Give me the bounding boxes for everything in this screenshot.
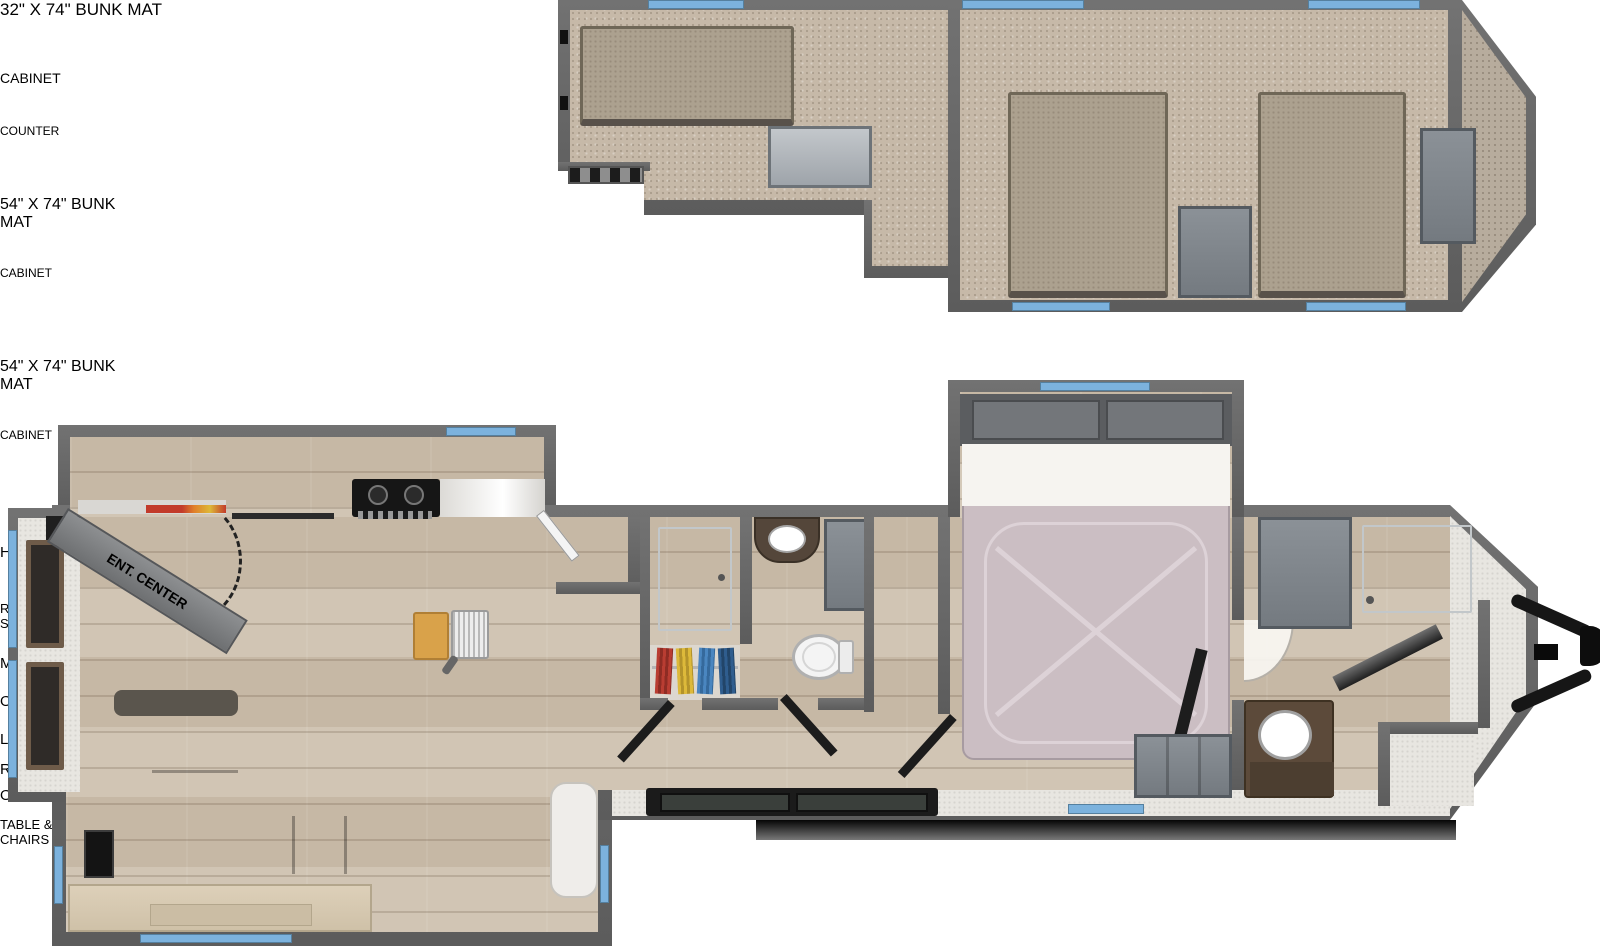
wall xyxy=(640,517,650,705)
loft-stair-tread xyxy=(874,139,946,170)
hitch-jack xyxy=(1534,644,1558,660)
loft-cabinet-mid-label: CABINET xyxy=(0,266,74,358)
window xyxy=(1012,302,1110,311)
wall xyxy=(1378,722,1478,734)
entry-door-pane xyxy=(660,793,790,812)
loft-stair-tread xyxy=(874,232,946,263)
island-chair xyxy=(312,572,368,604)
loft-stair-tread xyxy=(874,108,946,139)
microwave-cabinet xyxy=(342,437,434,479)
l-sofa-armrest xyxy=(114,690,238,716)
island-chair xyxy=(312,691,368,721)
chassis-rail xyxy=(756,820,1456,840)
bath-sink xyxy=(768,525,806,553)
burner xyxy=(368,485,388,505)
window xyxy=(1308,0,1420,9)
bunk-mat-32x74 xyxy=(580,26,794,126)
bedroom-ohc-face xyxy=(972,400,1100,440)
wall xyxy=(740,517,752,644)
loft-cabinet-mid xyxy=(1178,206,1252,298)
stair-tread xyxy=(874,571,938,606)
burner xyxy=(404,485,424,505)
med-base xyxy=(1250,762,1334,796)
tv xyxy=(84,830,114,878)
slide-topper xyxy=(988,8,1150,32)
loft-cabinet-right xyxy=(1420,128,1476,244)
entry-step xyxy=(664,818,752,852)
cushion-seam xyxy=(344,816,347,874)
window xyxy=(140,934,292,943)
rear-window xyxy=(26,662,64,770)
ward-closet-seam xyxy=(1166,737,1169,795)
refrigerator xyxy=(228,437,338,515)
window xyxy=(446,427,516,436)
l-sofa xyxy=(112,688,240,878)
pillow xyxy=(1094,450,1198,498)
bunk-mat-54x74-left xyxy=(1008,92,1168,298)
rv-floorplan: 32" X 74" BUNK MAT CABINET COUNTER 54" X… xyxy=(0,0,1600,946)
window xyxy=(1306,302,1406,311)
loft-cabinet-left xyxy=(768,126,872,188)
loft-cabinet-right-text: CABINET xyxy=(0,428,52,442)
pillow xyxy=(976,450,1080,498)
wall xyxy=(556,582,640,594)
bunk-mat-54x74-right xyxy=(1258,92,1406,298)
wall xyxy=(1232,700,1244,790)
window xyxy=(8,660,17,778)
stair-tread xyxy=(874,676,938,711)
window xyxy=(8,530,17,648)
dresser xyxy=(1040,740,1132,796)
cutting-board xyxy=(413,612,449,660)
loft-stair-tread xyxy=(874,201,946,232)
bunk-mat-54x74-right-label: 54" X 74" BUNK MAT xyxy=(0,358,148,428)
dining-chair xyxy=(402,786,456,838)
hanging-clothes xyxy=(676,648,694,695)
stair-tread xyxy=(874,606,938,641)
closet-linen xyxy=(1258,517,1352,629)
wd-prep-room xyxy=(1390,734,1474,806)
window xyxy=(648,0,744,9)
slide-topper xyxy=(1278,8,1445,32)
hidden-pantry xyxy=(78,437,226,502)
toilet-seat xyxy=(802,642,836,672)
entry-door-pane xyxy=(796,793,928,812)
hanging-clothes xyxy=(718,648,736,695)
bedroom-ohc-face xyxy=(1106,400,1224,440)
shower-drain xyxy=(1366,596,1374,604)
loft-counter-text: COUNTER xyxy=(0,124,59,138)
dining-chair xyxy=(402,844,456,896)
window xyxy=(1068,804,1144,814)
loft-stair-tread xyxy=(874,170,946,201)
ward-closet-seam xyxy=(1198,737,1201,795)
kitchen-counter-right xyxy=(440,479,545,517)
loft-counter-label: COUNTER xyxy=(0,124,46,196)
rear-window xyxy=(26,540,64,648)
wall xyxy=(864,517,874,712)
entry-step xyxy=(656,850,756,886)
shower-pan-line xyxy=(1362,525,1472,613)
bunk-mat-54x74-left-label: 54" X 74" BUNK MAT xyxy=(0,196,150,266)
bunk-mat-32x74-label: 32" X 74" BUNK MAT xyxy=(0,0,180,70)
cushion-seam xyxy=(292,816,295,874)
stair-tread xyxy=(874,641,938,676)
hitch-coupler xyxy=(1580,626,1600,666)
med-sink xyxy=(1258,710,1312,760)
wall xyxy=(702,698,778,710)
island-sink xyxy=(451,610,489,659)
window xyxy=(1040,382,1150,391)
shower-drain xyxy=(718,574,725,581)
dining-table-text: TABLE & CHAIRS xyxy=(0,817,53,847)
hanging-clothes xyxy=(655,648,673,695)
loft-cabinet-mid-text: CABINET xyxy=(0,266,52,280)
loft-edge-tick xyxy=(560,96,568,110)
cooktop-vent xyxy=(358,511,432,519)
wall xyxy=(1478,600,1490,728)
kitchen-ohc-cabinet xyxy=(442,437,538,479)
ward-closet xyxy=(1134,734,1232,798)
toilet-tank xyxy=(838,640,854,674)
recliners xyxy=(238,812,398,878)
dining-bench xyxy=(550,782,598,898)
refrigerator-base xyxy=(232,513,334,519)
loft-stair-landing xyxy=(874,12,946,108)
stair-landing xyxy=(874,519,938,571)
loft-dock-hatch xyxy=(568,166,644,184)
sofa-ohc-step xyxy=(150,904,312,926)
cushion-seam xyxy=(152,770,238,773)
dining-table xyxy=(458,772,548,918)
loft-cabinet-left-label: CABINET xyxy=(0,70,100,124)
loft-counter xyxy=(960,230,1006,300)
window xyxy=(54,846,63,904)
wall xyxy=(938,517,950,714)
loft-edge-tick xyxy=(560,30,568,44)
hanging-clothes xyxy=(697,648,715,695)
wall xyxy=(1378,722,1390,806)
window xyxy=(600,845,609,903)
window xyxy=(962,0,1084,9)
wall xyxy=(1232,517,1244,620)
